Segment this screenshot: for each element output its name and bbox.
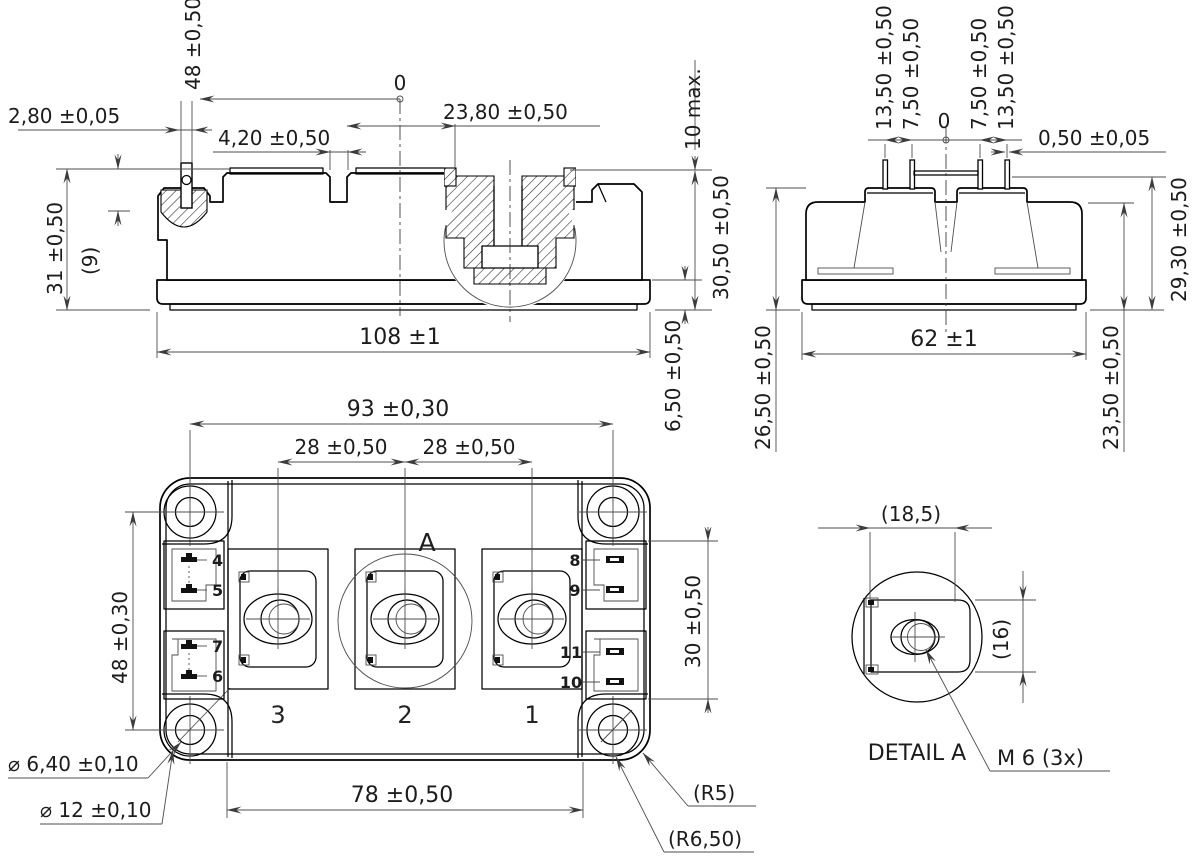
- dim-front-datum-0: 0: [394, 71, 407, 95]
- dim-label-48-plan: 48 ±0,30: [108, 591, 132, 684]
- dim-label-18-5: (18,5): [881, 502, 941, 526]
- pin-label-7: 7: [212, 637, 223, 656]
- dim-label-30-50: 30,50 ±0,50: [709, 175, 733, 300]
- dim-label-30: 30 ±0,50: [681, 575, 705, 668]
- dim-label-93: 93 ±0,30: [347, 397, 449, 422]
- module-dimension-drawing: 48 ±0,50 0 2,80 ±0,05 4,20 ±0,50 23,80 ±…: [0, 0, 1193, 861]
- dim-label-r6-50: (R6,50): [668, 827, 742, 851]
- dim-label-6-50: 6,50 ±0,50: [661, 320, 685, 432]
- dim-detail-18-5: (18,5): [818, 502, 992, 602]
- dim-label-diam-6-40: ⌀ 6,40 ±0,10: [8, 752, 139, 776]
- terminal-label-3: 3: [270, 701, 285, 729]
- detail-terminal-plate: [864, 598, 970, 674]
- dim-side-26-50: 26,50 ±0,50: [751, 188, 806, 452]
- dim-label-31: 31 ±0,50: [43, 202, 67, 295]
- dim-plan-78: 78 ±0,50: [227, 762, 583, 818]
- dim-label-29-30: 29,30 ±0,50: [1167, 177, 1191, 302]
- front-aux-terminal: [161, 163, 207, 227]
- detail-title: DETAIL A: [868, 741, 966, 766]
- dim-label-26-50: 26,50 ±0,50: [751, 325, 775, 450]
- dim-label-28-left: 28 ±0,50: [294, 435, 387, 459]
- side-view-baseplate: [802, 280, 1086, 310]
- detail-a-letter: A: [418, 528, 435, 557]
- dim-label-0: 0: [394, 71, 407, 95]
- dim-plan-r5: (R5): [643, 753, 756, 806]
- dim-side-62: 62 ±1: [802, 312, 1086, 360]
- dim-front-10max: 10 max.: [570, 60, 712, 170]
- dim-front-4-20: 4,20 ±0,50: [213, 126, 366, 170]
- pin-label-6: 6: [212, 667, 223, 686]
- dim-side-23-50: 23,50 ±0,50: [1088, 203, 1134, 452]
- pin-label-5: 5: [212, 581, 223, 600]
- dim-label-16: (16): [989, 619, 1013, 660]
- front-view-baseplate: [157, 280, 650, 310]
- dim-detail-16: (16): [975, 571, 1036, 703]
- dim-label-10max: 10 max.: [681, 68, 705, 150]
- dim-label-108: 108 ±1: [359, 325, 440, 350]
- technical-drawing-page: 48 ±0,50 0 2,80 ±0,05 4,20 ±0,50 23,80 ±…: [0, 0, 1193, 861]
- plan-connectors-right: 8 9 11 10: [560, 541, 646, 699]
- plan-view: 3 2 1 A 4 5 7 6: [8, 397, 756, 852]
- dim-label-13-50-left: 13,50 ±0,50: [872, 5, 896, 130]
- pin-label-9: 9: [569, 581, 580, 600]
- dim-plan-hole-diameter: ⌀ 6,40 ±0,10: [8, 742, 181, 778]
- dim-label-2-80: 2,80 ±0,05: [8, 104, 120, 128]
- dim-front-6-50: 6,50 ±0,50: [652, 266, 702, 432]
- dim-label-diam-12: ⌀ 12 ±0,10: [40, 798, 152, 822]
- dim-label-r5: (R5): [693, 781, 735, 805]
- dim-label-48: 48 ±0,50: [181, 0, 205, 90]
- dim-plan-48: 48 ±0,30: [108, 512, 172, 730]
- dim-label-62: 62 ±1: [910, 327, 977, 352]
- detail-view: (18,5) (16) M 6 (3x) DETAIL A: [818, 502, 1110, 771]
- dim-label-4-20: 4,20 ±0,50: [218, 126, 330, 150]
- pin-label-4: 4: [212, 551, 223, 570]
- dim-label-23-50: 23,50 ±0,50: [1099, 325, 1123, 450]
- dim-plan-93: 93 ±0,30: [190, 397, 613, 502]
- dim-front-108: 108 ±1: [157, 312, 650, 358]
- pin-label-10: 10: [560, 673, 582, 692]
- dim-side-ordinate-pins: 13,50 ±0,50 7,50 ±0,50 0 7,50 ±0,50 13,5…: [868, 5, 1022, 158]
- dim-front-23-80: 23,80 ±0,50: [347, 100, 600, 168]
- dim-label-23-80: 23,80 ±0,50: [443, 100, 568, 124]
- dim-front-9: (9): [78, 154, 130, 275]
- dim-label-side-0: 0: [938, 109, 951, 133]
- front-view: 48 ±0,50 0 2,80 ±0,05 4,20 ±0,50 23,80 ±…: [8, 0, 733, 432]
- plan-connectors-left: 4 5 7 6: [164, 541, 224, 699]
- dim-label-7-50-right: 7,50 ±0,50: [967, 18, 991, 130]
- pin-label-8: 8: [569, 551, 580, 570]
- dim-label-7-50-left: 7,50 ±0,50: [899, 18, 923, 130]
- dim-label-28-right: 28 ±0,50: [422, 435, 515, 459]
- dim-front-30-50: 30,50 ±0,50: [655, 171, 733, 310]
- dim-label-9: (9): [78, 247, 102, 275]
- dim-plan-30: 30 ±0,50: [648, 527, 718, 713]
- terminal-label-1: 1: [524, 701, 539, 729]
- dim-label-0-50: 0,50 ±0,05: [1038, 126, 1150, 150]
- side-view: 13,50 ±0,50 7,50 ±0,50 0 7,50 ±0,50 13,5…: [751, 5, 1191, 452]
- dim-label-78: 78 ±0,50: [351, 783, 453, 808]
- side-view-body-outline: [806, 188, 1082, 280]
- terminal-label-2: 2: [397, 701, 412, 729]
- dim-label-13-50-right: 13,50 ±0,50: [994, 5, 1018, 130]
- pin-label-11: 11: [560, 643, 582, 662]
- thread-spec-label: M 6 (3x): [997, 746, 1084, 770]
